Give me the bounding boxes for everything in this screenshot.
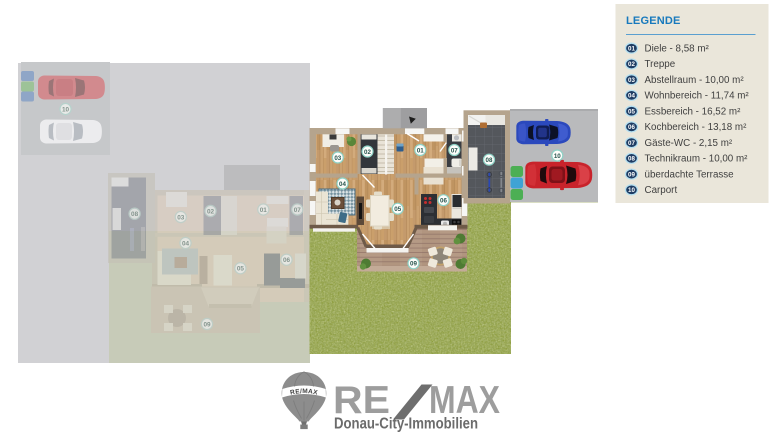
svg-text:10: 10 bbox=[628, 187, 635, 194]
svg-text:02: 02 bbox=[207, 208, 215, 215]
svg-text:Diele - 8,58 m²: Diele - 8,58 m² bbox=[645, 43, 710, 54]
svg-text:07: 07 bbox=[294, 207, 302, 214]
svg-text:03: 03 bbox=[334, 155, 341, 162]
svg-text:02: 02 bbox=[628, 61, 635, 68]
svg-text:08: 08 bbox=[628, 156, 635, 163]
svg-text:Gäste-WC - 2,15 m²: Gäste-WC - 2,15 m² bbox=[645, 138, 733, 149]
svg-text:05: 05 bbox=[237, 266, 245, 273]
svg-text:Donau-City-Immobilien: Donau-City-Immobilien bbox=[334, 416, 478, 433]
svg-text:07: 07 bbox=[628, 140, 635, 147]
svg-text:09: 09 bbox=[203, 321, 211, 328]
svg-text:überdachte Terrasse: überdachte Terrasse bbox=[645, 169, 735, 180]
svg-text:04: 04 bbox=[182, 240, 190, 247]
svg-text:04: 04 bbox=[339, 181, 346, 188]
svg-text:05: 05 bbox=[394, 206, 401, 213]
svg-text:07: 07 bbox=[451, 147, 458, 154]
svg-text:09: 09 bbox=[628, 171, 635, 178]
svg-text:03: 03 bbox=[628, 77, 635, 84]
svg-text:08: 08 bbox=[486, 157, 493, 164]
svg-text:10: 10 bbox=[62, 106, 70, 113]
svg-text:Technikraum - 10,00 m²: Technikraum - 10,00 m² bbox=[645, 154, 749, 165]
svg-text:06: 06 bbox=[628, 124, 635, 131]
svg-text:Abstellraum - 10,00 m²: Abstellraum - 10,00 m² bbox=[645, 75, 745, 86]
svg-text:03: 03 bbox=[177, 214, 185, 221]
svg-text:09: 09 bbox=[410, 261, 417, 268]
svg-text:01: 01 bbox=[628, 45, 635, 52]
svg-text:Carport: Carport bbox=[645, 185, 678, 196]
svg-text:Kochbereich - 13,18 m²: Kochbereich - 13,18 m² bbox=[645, 122, 748, 133]
svg-text:Wohnbereich - 11,74 m²: Wohnbereich - 11,74 m² bbox=[645, 91, 750, 102]
svg-text:06: 06 bbox=[440, 198, 447, 205]
svg-text:Essbereich - 16,52 m²: Essbereich - 16,52 m² bbox=[645, 106, 742, 117]
svg-text:02: 02 bbox=[364, 149, 371, 156]
svg-text:01: 01 bbox=[417, 147, 424, 154]
svg-text:01: 01 bbox=[260, 207, 268, 214]
svg-text:LEGENDE: LEGENDE bbox=[626, 15, 681, 27]
svg-text:05: 05 bbox=[628, 108, 635, 115]
svg-text:04: 04 bbox=[628, 93, 635, 100]
svg-text:06: 06 bbox=[283, 257, 291, 264]
svg-text:10: 10 bbox=[554, 153, 561, 160]
svg-text:08: 08 bbox=[131, 211, 139, 218]
svg-text:Treppe: Treppe bbox=[645, 59, 676, 70]
